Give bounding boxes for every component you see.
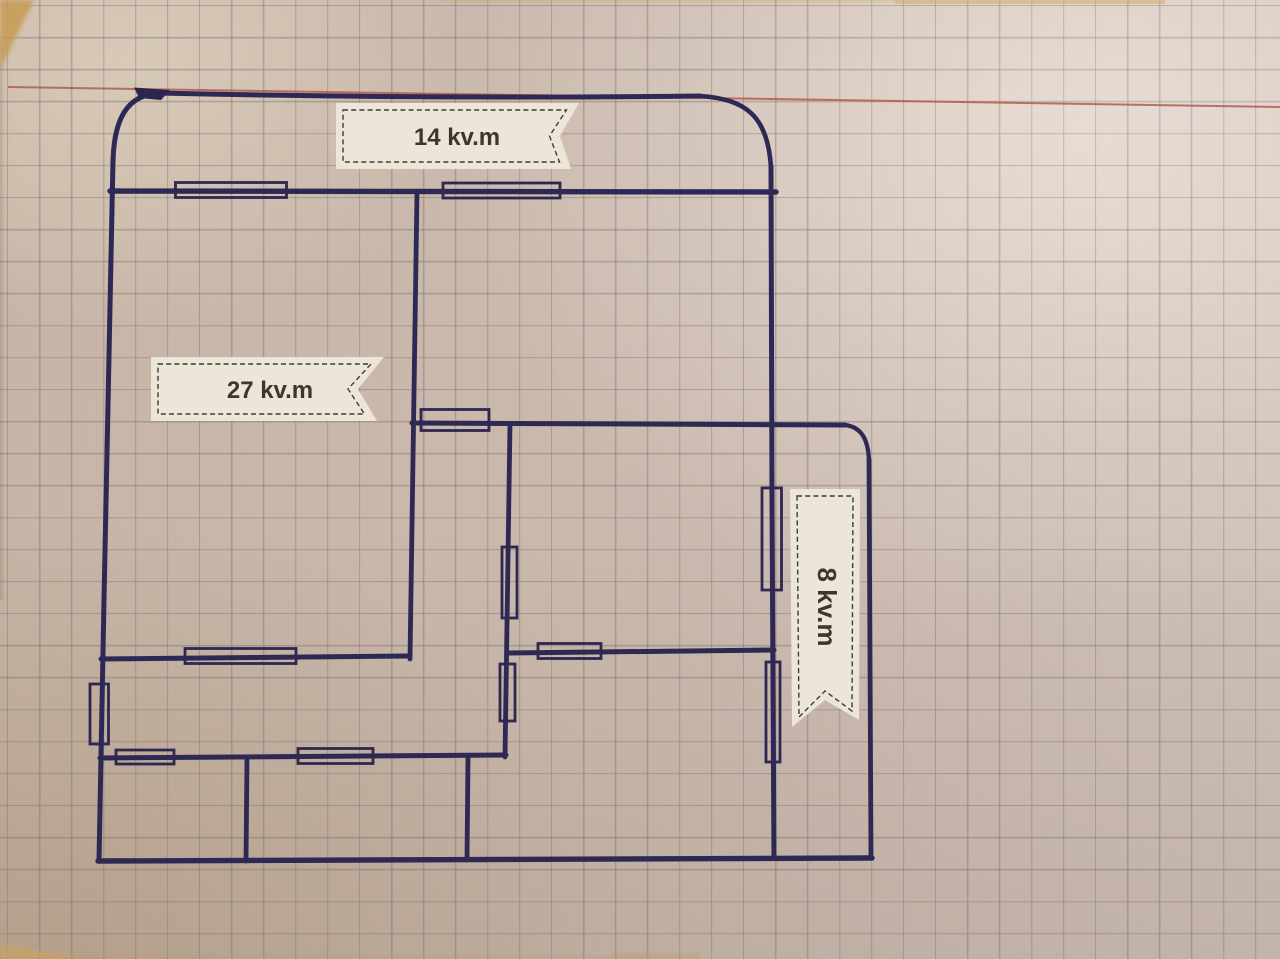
svg-text:8 kv.m: 8 kv.m — [812, 567, 842, 646]
svg-text:27 kv.m: 27 kv.m — [227, 377, 313, 404]
svg-text:14 kv.m: 14 kv.m — [414, 124, 500, 151]
